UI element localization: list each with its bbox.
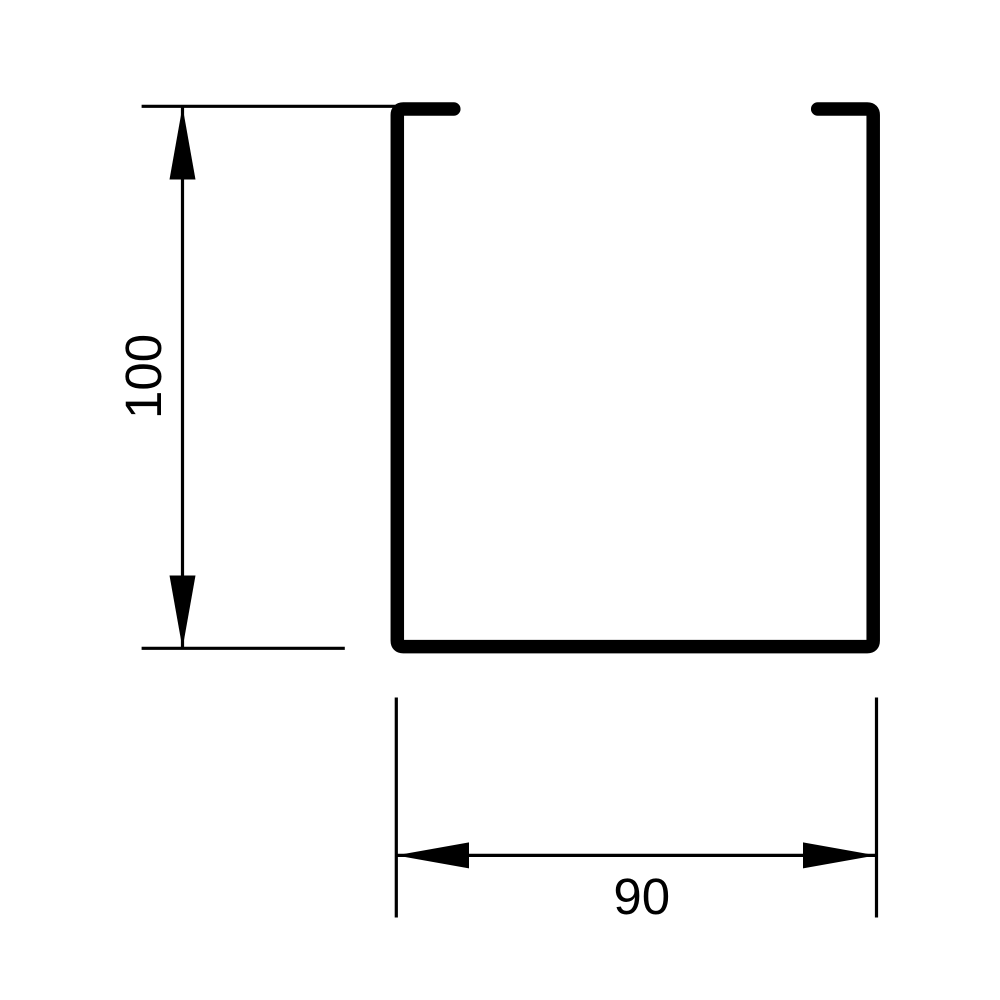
svg-text:90: 90 (613, 868, 670, 925)
svg-text:100: 100 (115, 334, 172, 419)
